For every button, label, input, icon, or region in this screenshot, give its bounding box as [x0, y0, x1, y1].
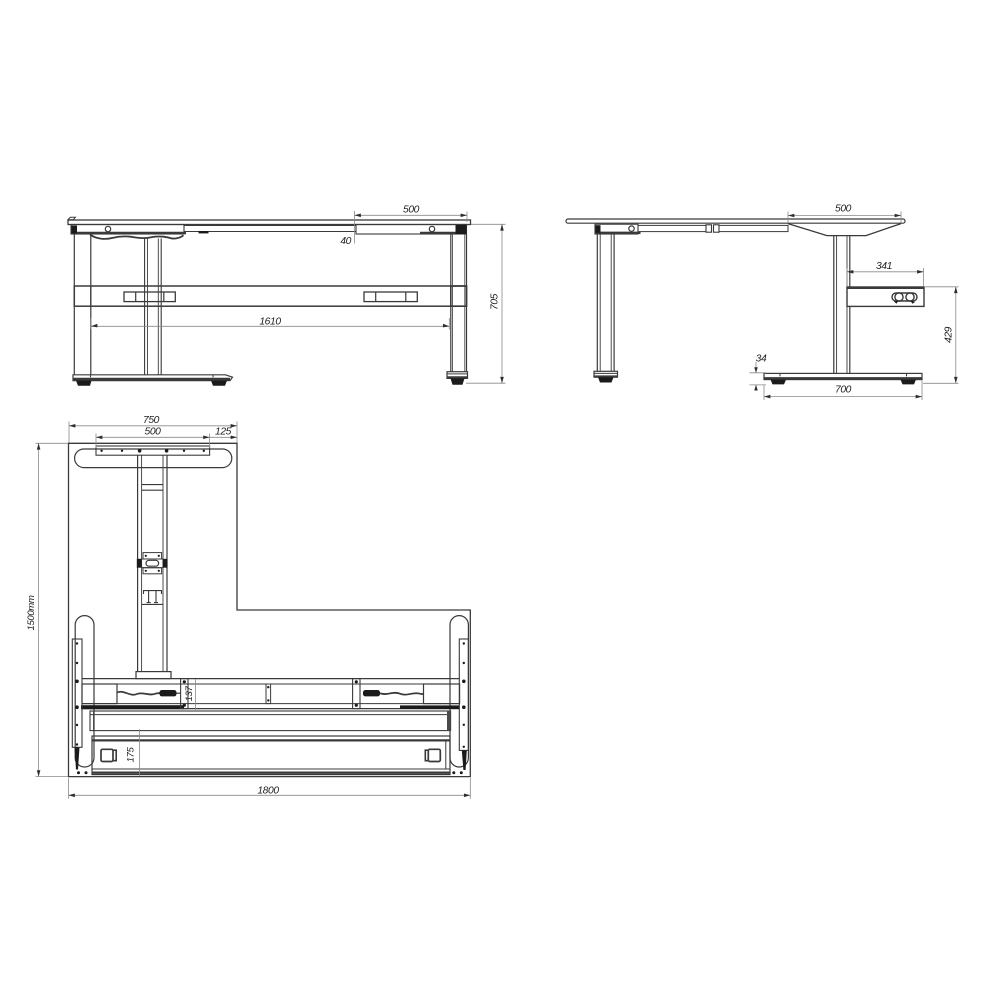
- svg-text:700: 700: [835, 384, 852, 395]
- svg-text:137: 137: [184, 686, 195, 702]
- svg-text:40: 40: [340, 236, 351, 247]
- svg-text:175: 175: [126, 747, 137, 763]
- svg-text:429: 429: [943, 326, 954, 343]
- svg-text:705: 705: [490, 293, 501, 310]
- svg-text:34: 34: [756, 354, 767, 365]
- svg-text:500: 500: [145, 427, 162, 438]
- svg-text:500: 500: [403, 204, 420, 215]
- svg-text:341: 341: [876, 261, 892, 272]
- svg-text:750: 750: [143, 415, 160, 426]
- svg-text:1500mm: 1500mm: [26, 595, 37, 630]
- svg-text:1610: 1610: [259, 317, 281, 328]
- svg-text:125: 125: [215, 427, 232, 438]
- svg-text:1800: 1800: [257, 785, 279, 796]
- svg-text:500: 500: [835, 204, 852, 215]
